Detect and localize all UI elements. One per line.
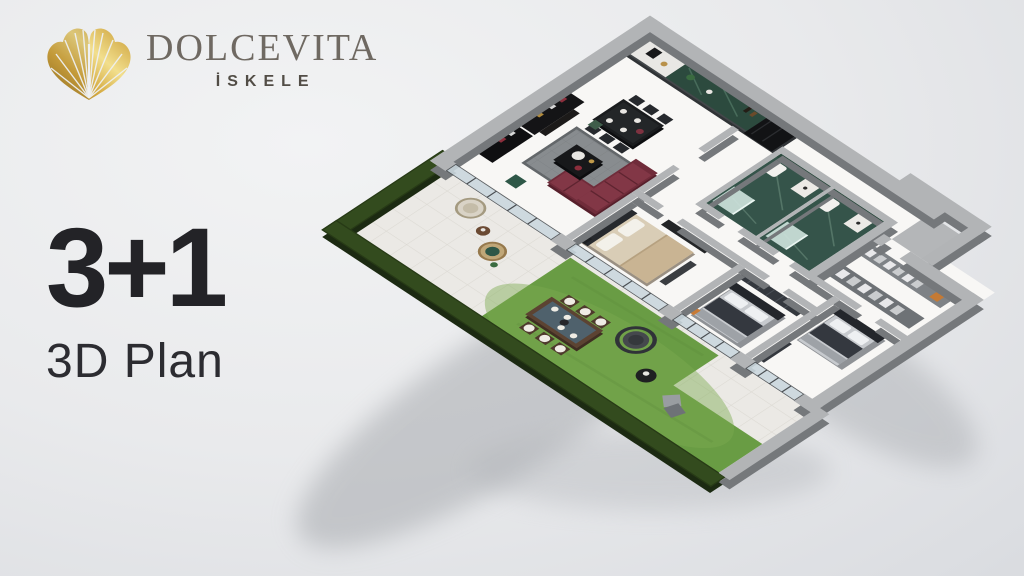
plan-caption: 3D Plan [46,338,224,386]
unit-type-title: 3+1 [46,212,224,324]
brand-location: İSKELE [209,73,316,91]
headline-block: 3+1 3D Plan [46,212,224,386]
brand-logo: DOLCEVITA İSKELE [42,16,378,104]
brand-name: DOLCEVITA [146,29,378,67]
marketing-slide: { "brand": { "name": "DOLCEVITA", "locat… [0,0,1024,576]
gold-fan-leaf-icon [42,16,136,104]
